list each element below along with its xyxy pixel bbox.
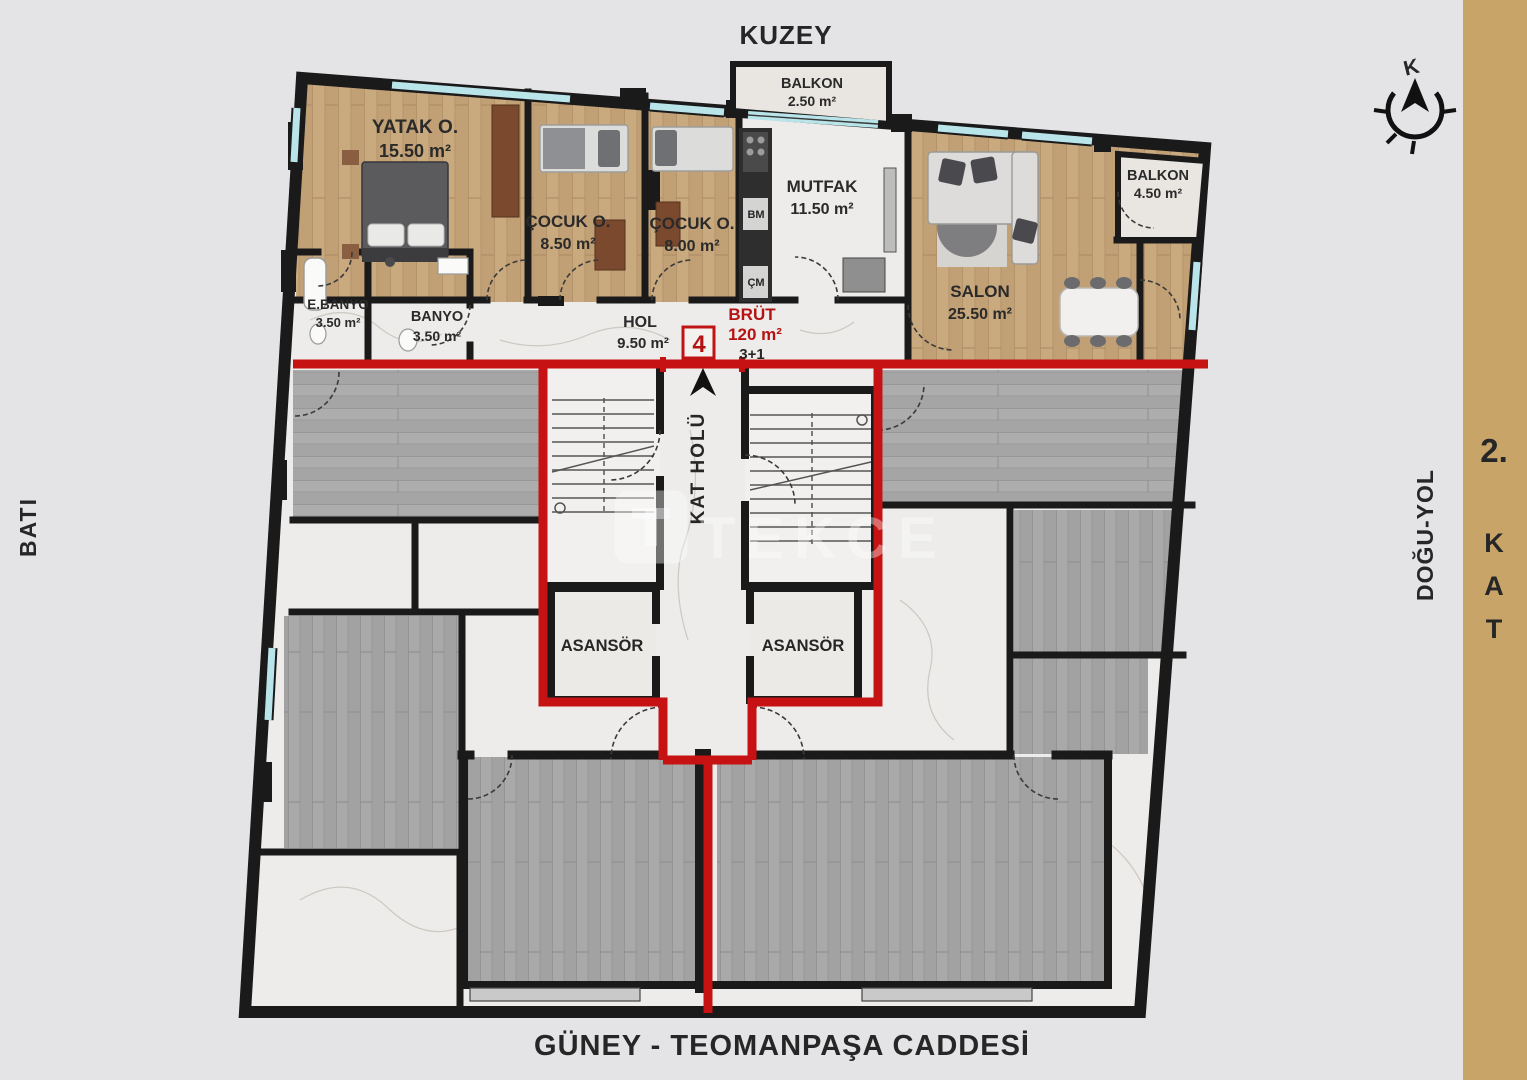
kids-room-1-floor — [528, 92, 645, 302]
floor-plan-canvas: 2. K A T — [0, 0, 1527, 1080]
unit-gross-area: 120 m² — [728, 325, 782, 344]
right-unit-room-a — [880, 370, 1192, 503]
left-unit-room-b — [284, 616, 459, 848]
watermark: TEKCE — [618, 494, 947, 571]
room-label-balcony-e: BALKON — [1127, 168, 1189, 184]
direction-south-street: GÜNEY - TEOMANPAŞA CADDESİ — [534, 1029, 1030, 1062]
room-label-banyo: BANYO — [411, 309, 463, 325]
room-area-ebanyo: 3.50 m² — [316, 315, 361, 330]
elevator-left-label: ASANSÖR — [561, 636, 644, 655]
room-area-kitchen: 11.50 m² — [790, 201, 853, 218]
left-unit-room-a — [293, 370, 541, 518]
direction-east-road: DOĞU-YOL — [1411, 469, 1438, 601]
room-label-kids2: ÇOCUK O. — [650, 214, 735, 233]
room-label-bedroom: YATAK O. — [372, 117, 458, 138]
room-label-balcony-n: BALKON — [781, 76, 843, 92]
appliance-cm: ÇM — [747, 277, 764, 289]
unit-gross-label: BRÜT — [728, 305, 776, 324]
bottom-right-room — [717, 757, 1107, 984]
room-area-kids1: 8.50 m² — [540, 236, 595, 253]
room-label-ebanyo: E.BANYO — [307, 297, 369, 312]
appliance-bm: BM — [747, 209, 764, 221]
unit-plan-type: 3+1 — [739, 346, 764, 363]
room-label-hol: HOL — [623, 314, 657, 331]
right-unit-room-b — [1014, 510, 1179, 652]
elevator-right-label: ASANSÖR — [762, 636, 845, 655]
room-area-balcony-n: 2.50 m² — [788, 93, 837, 109]
floor-band: 2. K A T — [1463, 0, 1527, 1080]
room-area-banyo: 3.50 m² — [413, 328, 462, 344]
bottom-left-room — [466, 757, 700, 984]
room-area-hol: 9.50 m² — [617, 335, 669, 352]
floor-letter-k: K — [1484, 528, 1504, 558]
room-area-bedroom: 15.50 m² — [379, 141, 451, 161]
room-label-kids1: ÇOCUK O. — [526, 212, 611, 231]
right-unit-room-c — [1014, 658, 1148, 754]
unit-badge-number: 4 — [692, 331, 706, 358]
floor-letter-a: A — [1484, 571, 1504, 601]
direction-west: BATI — [15, 497, 41, 557]
room-area-kids2: 8.00 m² — [664, 238, 719, 255]
room-area-balcony-e: 4.50 m² — [1134, 185, 1183, 201]
direction-north: KUZEY — [739, 20, 832, 50]
room-area-salon: 25.50 m² — [948, 306, 1012, 323]
room-label-kitchen: MUTFAK — [787, 177, 859, 196]
floor-number: 2. — [1480, 432, 1508, 469]
floor-letter-t: T — [1486, 614, 1503, 644]
floor-plan-page: 2. K A T — [0, 0, 1527, 1080]
room-label-salon: SALON — [950, 282, 1010, 301]
watermark-text: TEKCE — [700, 506, 947, 571]
